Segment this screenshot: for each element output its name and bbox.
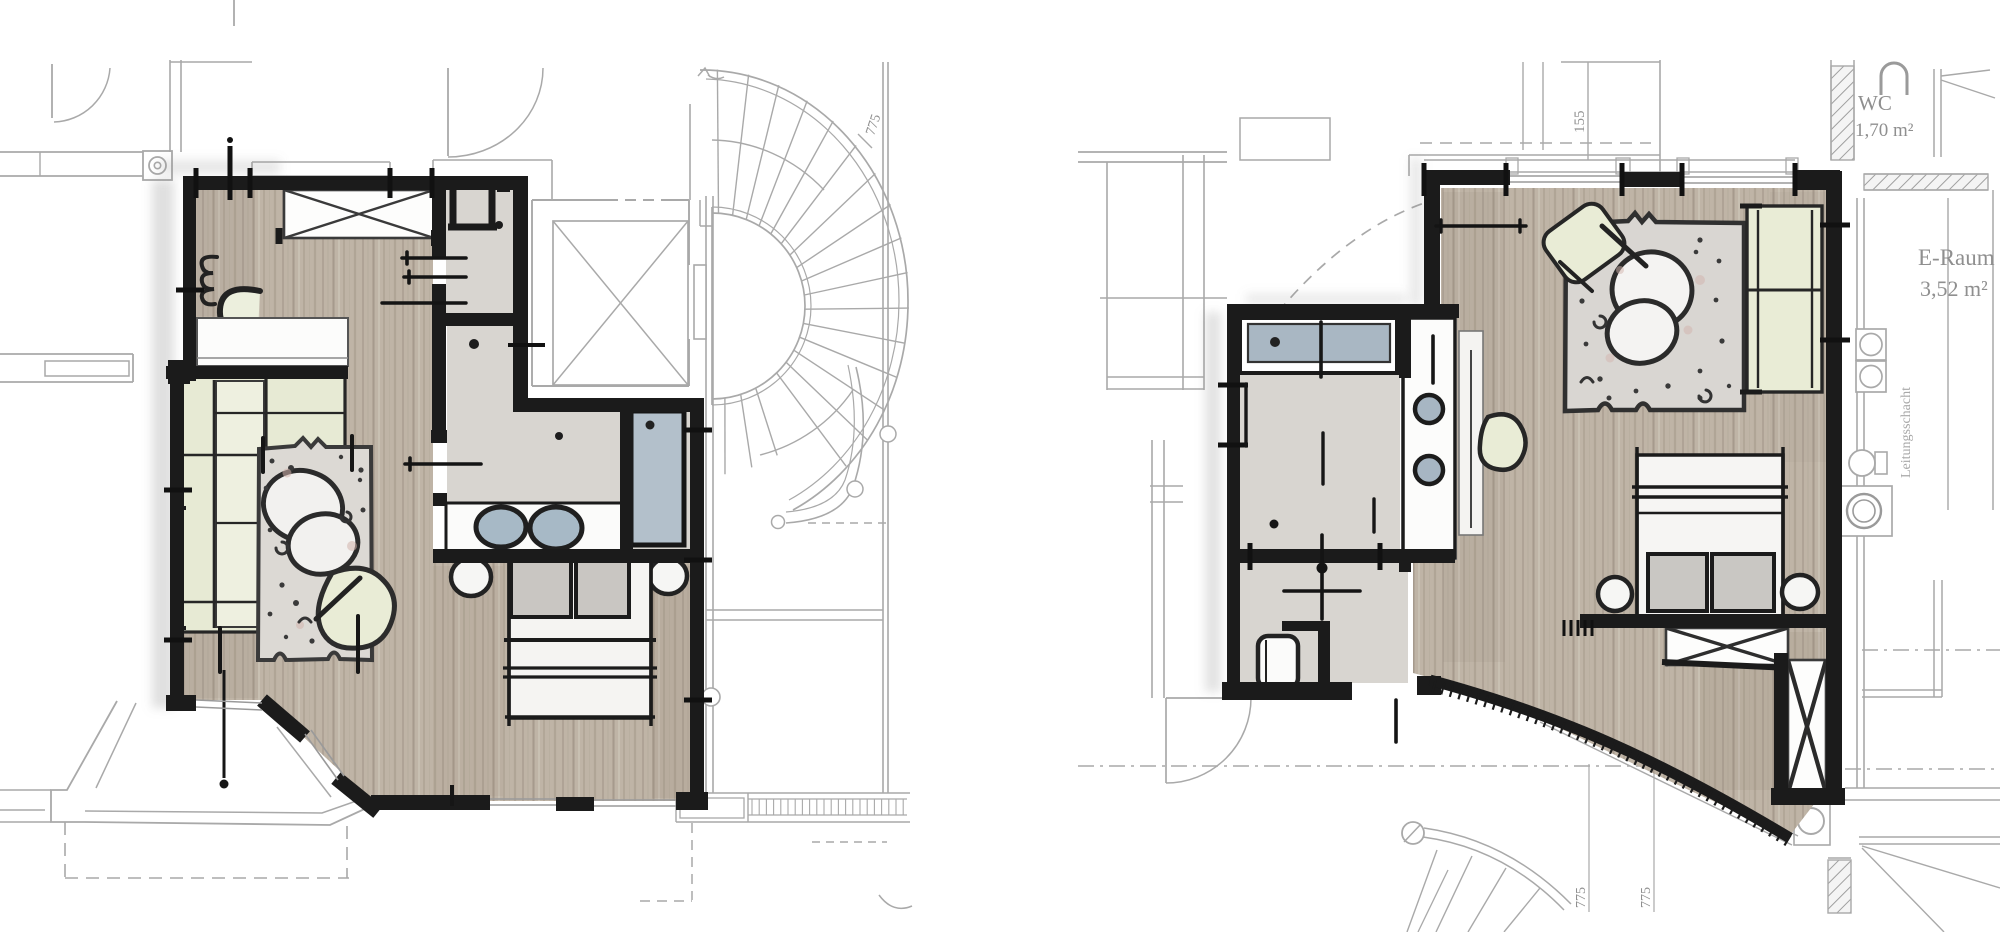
svg-text:3,52 m²: 3,52 m² <box>1920 276 1988 301</box>
svg-text:Leitungsschacht: Leitungsschacht <box>1899 387 1914 478</box>
svg-text:E-Raum: E-Raum <box>1918 245 1995 270</box>
svg-text:155: 155 <box>1572 111 1588 134</box>
svg-text:775: 775 <box>1574 887 1589 908</box>
svg-text:775: 775 <box>1639 887 1654 908</box>
svg-text:WC: WC <box>1858 91 1892 115</box>
svg-text:1,70 m²: 1,70 m² <box>1855 120 1914 141</box>
